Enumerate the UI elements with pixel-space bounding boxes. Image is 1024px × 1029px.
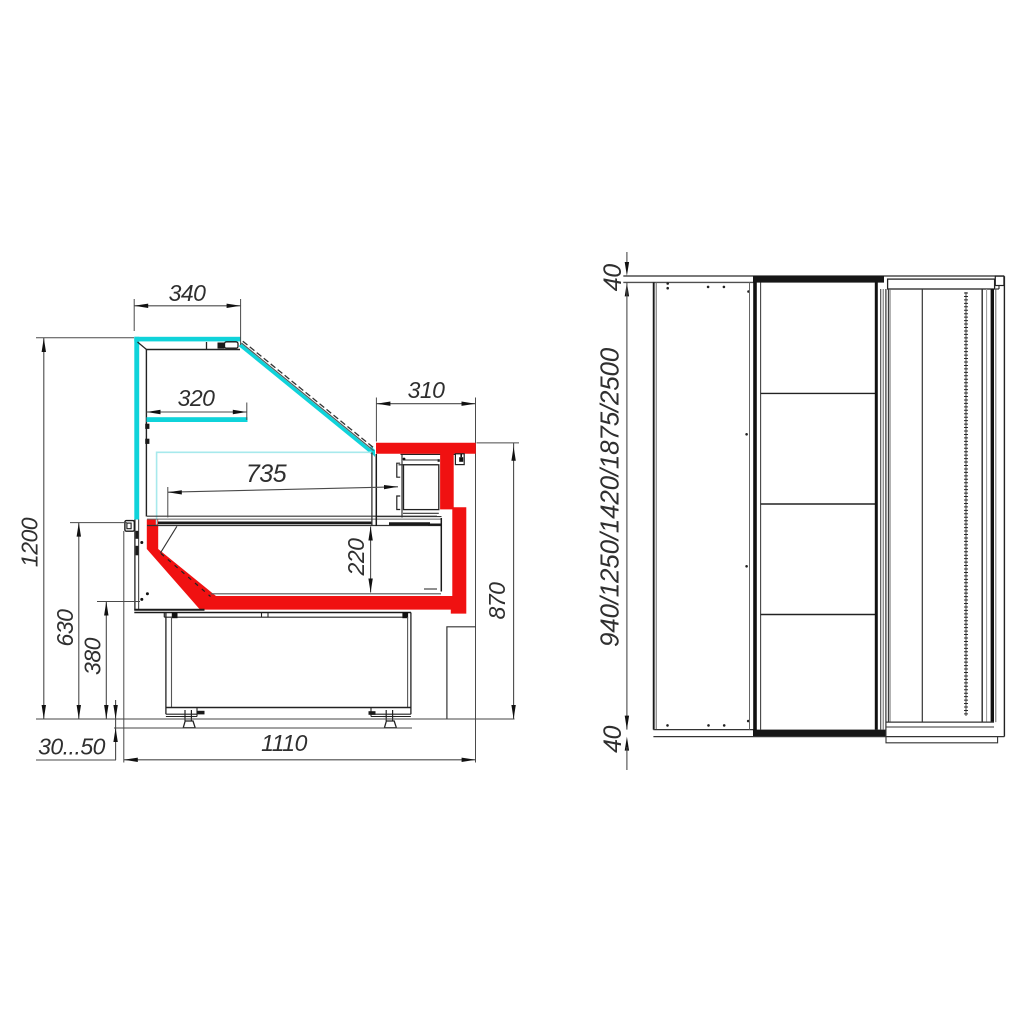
svg-text:870: 870 [484, 582, 510, 620]
svg-text:310: 310 [408, 377, 446, 403]
svg-text:40: 40 [599, 726, 627, 753]
svg-text:40: 40 [599, 264, 627, 291]
svg-text:380: 380 [80, 637, 106, 675]
svg-text:340: 340 [169, 280, 207, 306]
svg-text:630: 630 [52, 609, 78, 647]
svg-text:735: 735 [246, 460, 287, 488]
svg-text:1200: 1200 [17, 517, 43, 567]
svg-text:30...50: 30...50 [38, 734, 106, 760]
svg-text:320: 320 [178, 385, 216, 411]
svg-text:940/1250/1420/1875/2500: 940/1250/1420/1875/2500 [595, 347, 625, 647]
svg-text:220: 220 [343, 538, 369, 577]
svg-text:1110: 1110 [261, 730, 307, 756]
